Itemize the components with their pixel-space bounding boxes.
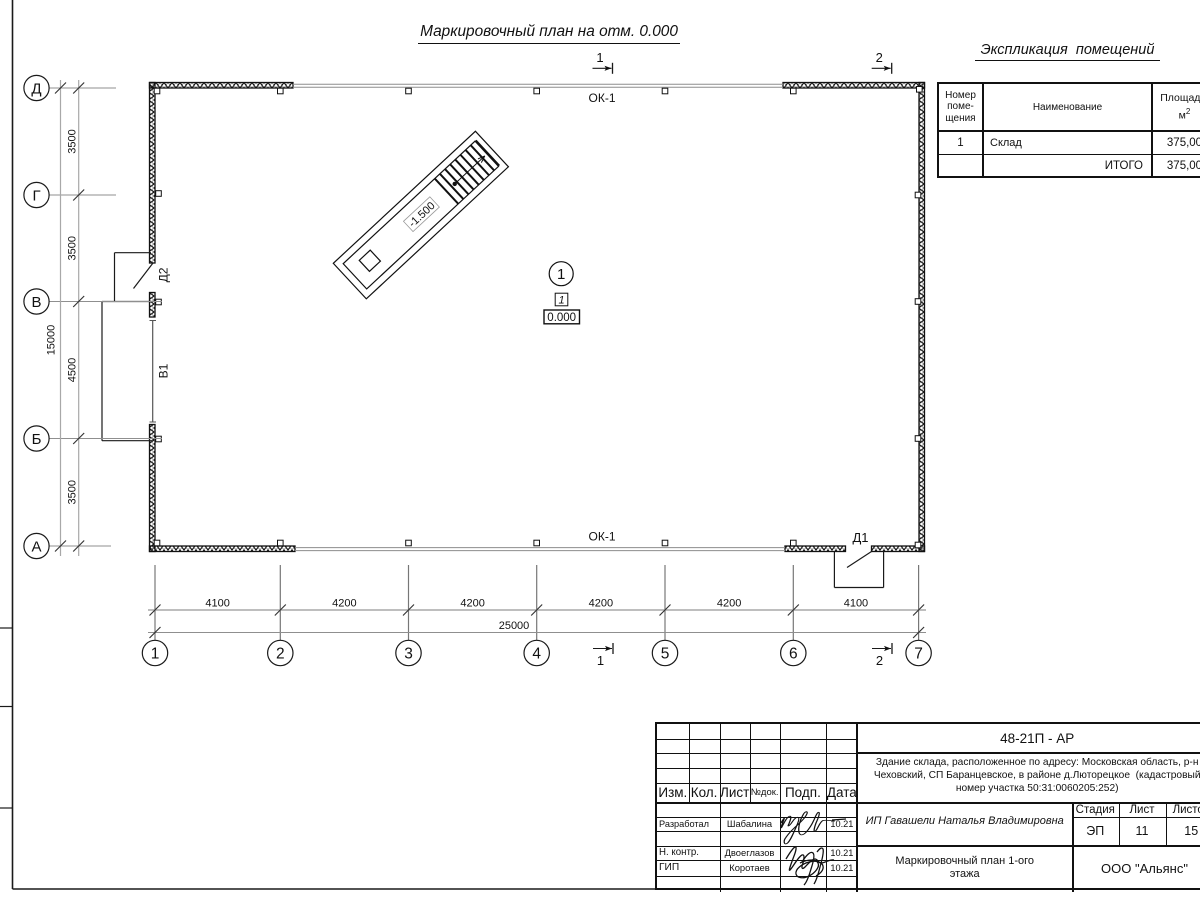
svg-text:4500: 4500 [67,358,79,382]
svg-text:4100: 4100 [844,598,868,610]
svg-text:7: 7 [914,646,923,663]
svg-text:ОК-1: ОК-1 [589,91,616,105]
svg-text:Д2: Д2 [157,267,171,282]
svg-text:4200: 4200 [460,598,484,610]
svg-text:ОК-1: ОК-1 [589,530,616,544]
svg-text:6: 6 [789,646,798,663]
svg-text:3500: 3500 [67,236,79,260]
svg-text:В1: В1 [157,363,171,378]
svg-text:2: 2 [876,653,883,668]
svg-text:2: 2 [876,50,883,65]
svg-text:3500: 3500 [67,129,79,153]
svg-text:5: 5 [661,646,670,663]
svg-text:Б: Б [32,431,42,448]
svg-text:4100: 4100 [205,598,229,610]
svg-text:1: 1 [558,295,564,307]
svg-text:1: 1 [597,653,604,668]
svg-text:2: 2 [276,646,285,663]
svg-text:1: 1 [557,266,565,283]
svg-text:4: 4 [532,646,541,663]
svg-text:Д1: Д1 [852,530,868,545]
svg-text:1: 1 [151,646,160,663]
svg-text:25000: 25000 [499,620,530,632]
svg-text:4200: 4200 [717,598,741,610]
svg-text:Г: Г [32,188,40,205]
svg-text:3500: 3500 [67,480,79,504]
svg-text:4200: 4200 [332,598,356,610]
svg-text:В: В [31,294,41,311]
svg-text:1: 1 [596,50,603,65]
svg-text:0.000: 0.000 [547,312,576,324]
svg-text:15000: 15000 [46,325,58,356]
svg-text:А: А [31,539,41,556]
svg-text:4200: 4200 [589,598,613,610]
svg-text:Д: Д [31,81,41,98]
svg-text:3: 3 [404,646,413,663]
